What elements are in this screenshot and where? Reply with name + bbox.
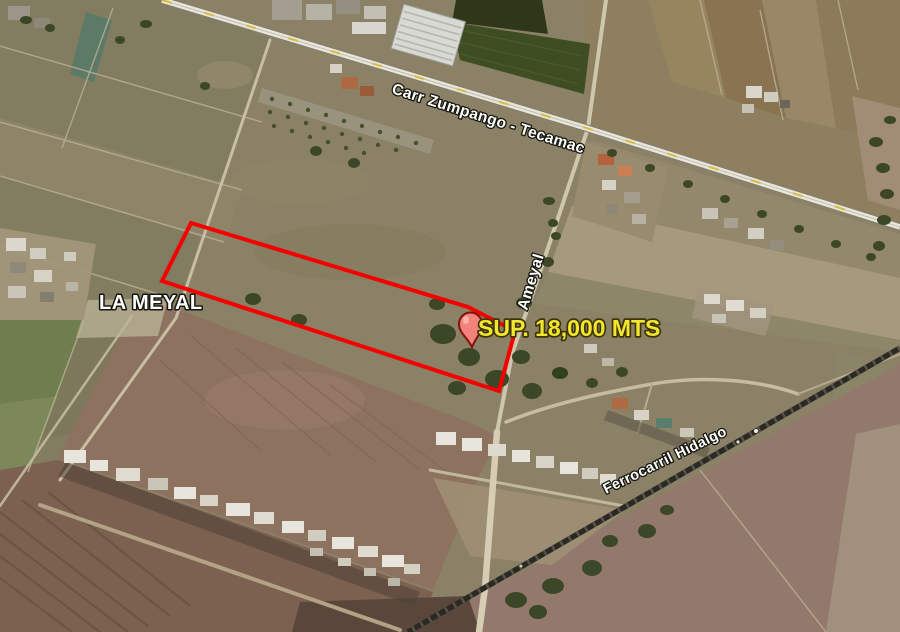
place-label: LA MEYAL xyxy=(99,292,203,314)
satellite-map[interactable]: Carr Zumpango - Tecamac LA MEYAL Ameyal … xyxy=(0,0,900,632)
parcel-area-label: SUP. 18,000 MTS xyxy=(478,315,660,341)
